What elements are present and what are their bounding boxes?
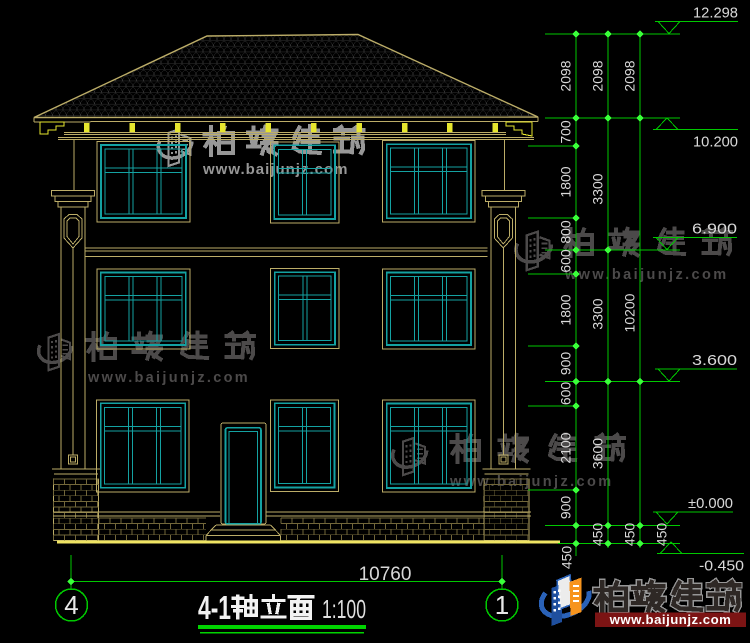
- svg-text:3300: 3300: [590, 298, 606, 329]
- svg-text:450: 450: [622, 523, 638, 547]
- svg-text:600: 600: [558, 382, 574, 406]
- svg-text:www.baijunjz.com: www.baijunjz.com: [449, 474, 614, 490]
- svg-text:600: 600: [558, 249, 574, 273]
- svg-text:450: 450: [590, 523, 606, 547]
- svg-text:10200: 10200: [622, 293, 638, 332]
- svg-text:900: 900: [558, 496, 574, 520]
- svg-text:-0.450: -0.450: [699, 558, 744, 575]
- svg-text:www.baijunjz.com: www.baijunjz.com: [202, 161, 348, 178]
- svg-text:10760: 10760: [359, 564, 412, 585]
- svg-text:2098: 2098: [590, 60, 606, 91]
- svg-text:www.baijunjz.com: www.baijunjz.com: [564, 267, 729, 283]
- svg-text:3300: 3300: [590, 173, 606, 204]
- svg-text:700: 700: [558, 120, 574, 144]
- svg-text:900: 900: [558, 352, 574, 376]
- svg-text:1: 1: [495, 590, 509, 620]
- svg-text:www.baijunjz.com: www.baijunjz.com: [609, 612, 732, 627]
- svg-text:10.200: 10.200: [693, 134, 738, 151]
- svg-text:2098: 2098: [622, 60, 638, 91]
- svg-text:3600: 3600: [590, 438, 606, 469]
- svg-text:±0.000: ±0.000: [688, 495, 733, 512]
- svg-text:2100: 2100: [558, 432, 574, 463]
- svg-text:1800: 1800: [558, 294, 574, 325]
- svg-text:www.baijunjz.com: www.baijunjz.com: [87, 370, 250, 386]
- svg-text:4-1: 4-1: [198, 589, 231, 626]
- svg-text:1:100: 1:100: [322, 594, 366, 624]
- svg-text:4: 4: [64, 590, 78, 620]
- svg-text:6.900: 6.900: [692, 221, 737, 238]
- svg-text:2098: 2098: [558, 60, 574, 91]
- svg-text:800: 800: [558, 220, 574, 244]
- svg-text:450: 450: [559, 546, 575, 570]
- svg-text:450: 450: [654, 523, 670, 547]
- svg-text:12.298: 12.298: [693, 5, 738, 22]
- svg-text:1800: 1800: [558, 166, 574, 197]
- svg-text:3.600: 3.600: [692, 352, 737, 369]
